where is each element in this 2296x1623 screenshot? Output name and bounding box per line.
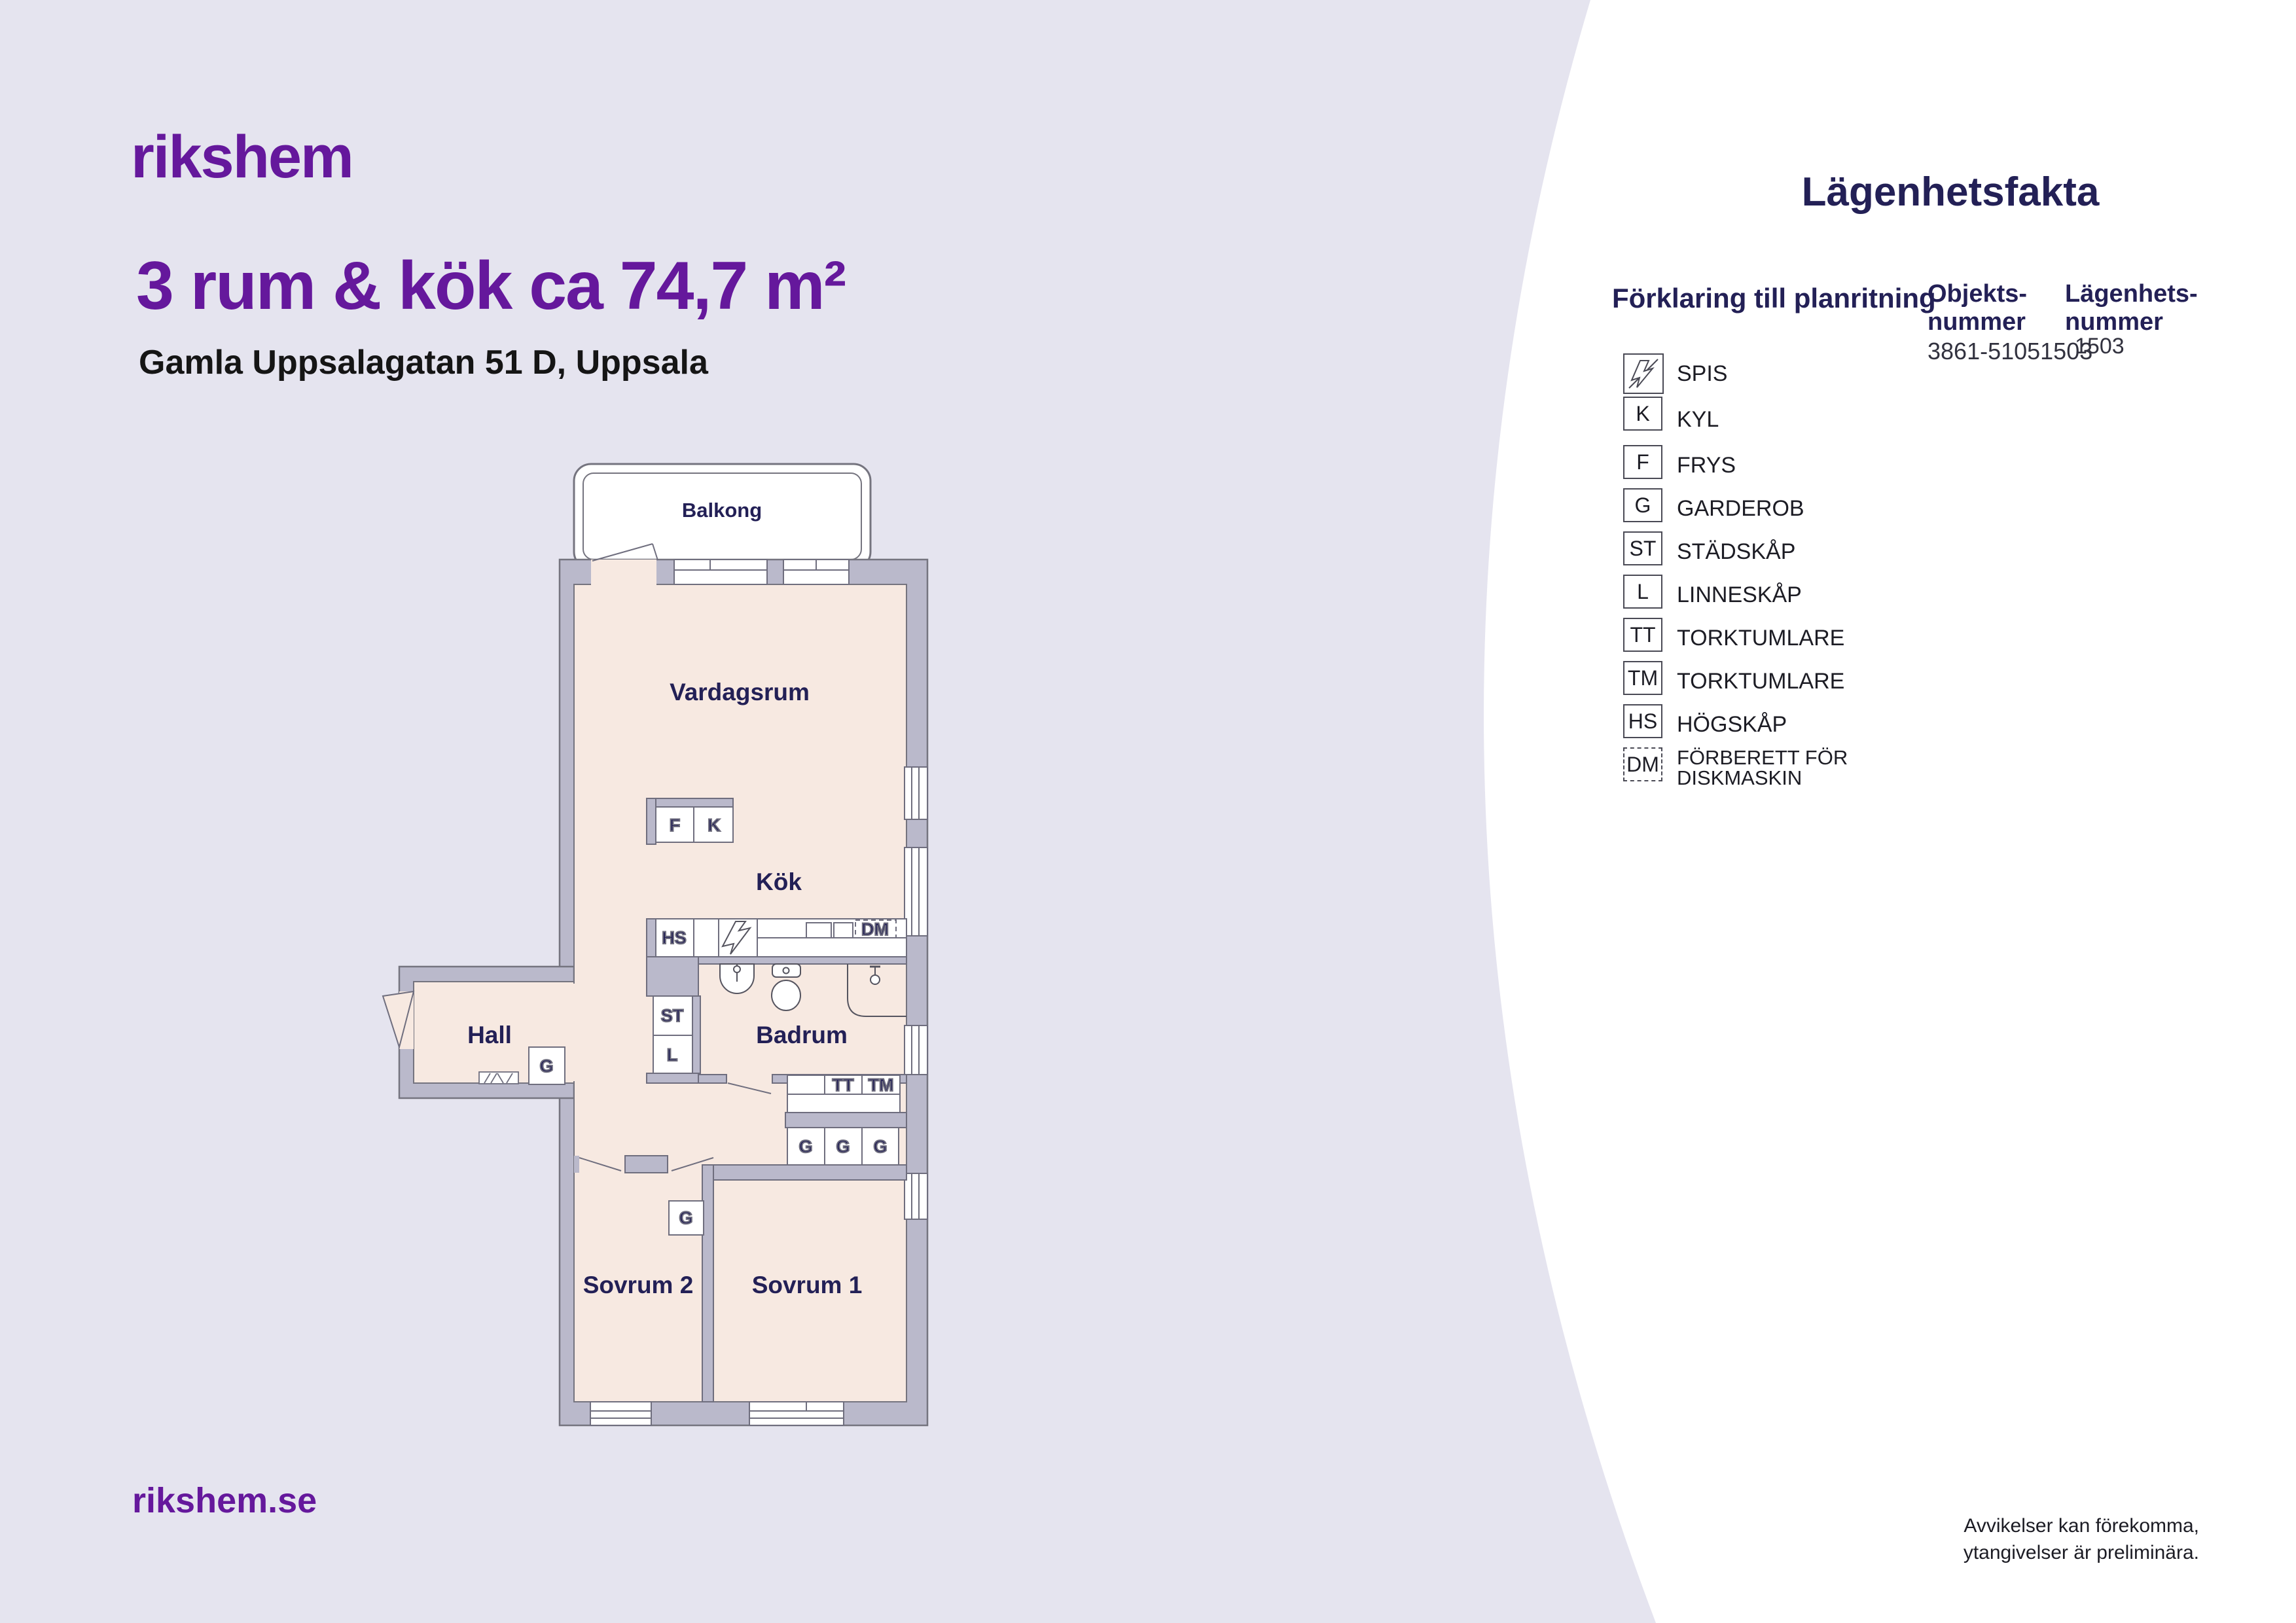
legend-label: GARDEROB [1677,497,1804,520]
legend-symbol-box: TT [1623,618,1662,652]
legend-symbol-box: K [1623,397,1662,431]
legend-symbol-box: TM [1623,661,1662,695]
legend-row-torktumlare-tt: TT TORKTUMLARE [1622,616,2067,660]
legend-title: Förklaring till planritning [1612,283,1936,314]
legend-symbol-box: ST [1623,531,1662,565]
legend-row-kyl: K KYL [1622,395,2067,444]
entry-door [383,991,414,1049]
legend-label: FRYS [1677,454,1736,476]
legend-label: TORKTUMLARE [1677,670,1844,692]
plan-legend: SPIS K KYL F FRYS G GARDEROB ST STÄDSKÅP… [1622,352,2067,789]
dryer-tm-label: TM [869,1075,894,1095]
rikshem-logo: rikshem [131,123,353,192]
page: { "brand": { "logo_text": "rikshem", "we… [0,0,2296,1623]
wardrobe-label: G [873,1137,887,1156]
legend-label: HÖGSKÅP [1677,713,1787,736]
tall-cabinet-label: HS [662,928,687,948]
wardrobe-label: G [798,1137,812,1156]
website-link[interactable]: rikshem.se [132,1480,317,1521]
dryer-tt-label: TT [833,1075,854,1095]
legend-label: KYL [1677,408,1719,431]
legend-row-spis: SPIS [1622,352,2067,395]
linen-cabinet-label: L [667,1045,678,1065]
coat-hooks-icon [479,1072,518,1084]
wardrobe-row: G G G [787,1128,899,1165]
wardrobe-label: G [679,1208,692,1228]
legend-symbol-box: L [1623,575,1662,609]
legend-label: SPIS [1677,363,1727,385]
hall-label: Hall [467,1022,512,1048]
floor-plan: Balkong [353,452,982,1433]
bedroom2-label: Sovrum 2 [583,1272,694,1298]
legend-row-hogskap: HS HÖGSKÅP [1622,703,2067,746]
legend-row-garderob: G GARDEROB [1622,487,2067,530]
legend-row-frys: F FRYS [1622,444,2067,487]
fridge-freezer-unit: F K [647,798,733,844]
top-windows [674,560,849,584]
bedroom1-label: Sovrum 1 [752,1272,863,1298]
legend-label: STÄDSKÅP [1677,541,1795,563]
legend-label: TORKTUMLARE [1677,627,1844,649]
fridge-label: K [708,815,721,835]
object-number-label: Objekts- nummer [1928,280,2027,336]
kitchen-counter: HS DM [647,919,906,957]
facts-panel-title: Lägenhetsfakta [1767,169,2134,215]
white-curve-background [0,0,2296,1623]
stove-symbol-box [1623,353,1664,394]
apartment-number-value: 1503 [2075,334,2125,359]
address-subtitle: Gamla Uppsalagatan 51 D, Uppsala [139,343,708,382]
laundry-unit: TT TM [785,1075,906,1128]
legend-symbol-box: G [1623,488,1662,522]
wardrobe-label: G [539,1056,553,1076]
page-title: 3 rum & kök ca 74,7 m² [136,247,845,325]
wardrobe-label: G [836,1137,850,1156]
balcony-label: Balkong [682,499,762,522]
cleaning-cabinet-label: ST [661,1006,684,1026]
legend-label: FÖRBERETT FÖR DISKMASKIN [1677,747,1848,788]
freezer-label: F [670,815,681,835]
living-room-label: Vardagsrum [670,679,810,705]
legend-label: LINNESKÅP [1677,584,1802,606]
dishwasher-label: DM [861,919,889,939]
legend-row-linneskap: L LINNESKÅP [1622,573,2067,616]
legend-symbol-box: HS [1623,704,1662,738]
legend-row-torktumlare-tm: TM TORKTUMLARE [1622,660,2067,703]
lightning-icon [1626,357,1660,391]
legend-symbol-box: F [1623,445,1662,479]
legend-symbol-box-dashed: DM [1623,747,1662,781]
disclaimer-text: Avvikelser kan förekomma, ytangivelser ä… [1872,1513,2199,1566]
kitchen-label: Kök [756,868,802,895]
apartment-number-label: Lägenhets- nummer [2065,280,2198,336]
legend-row-stadskap: ST STÄDSKÅP [1622,530,2067,573]
bathroom-label: Badrum [756,1022,848,1048]
legend-row-diskmaskin: DM FÖRBERETT FÖR DISKMASKIN [1622,746,2067,789]
